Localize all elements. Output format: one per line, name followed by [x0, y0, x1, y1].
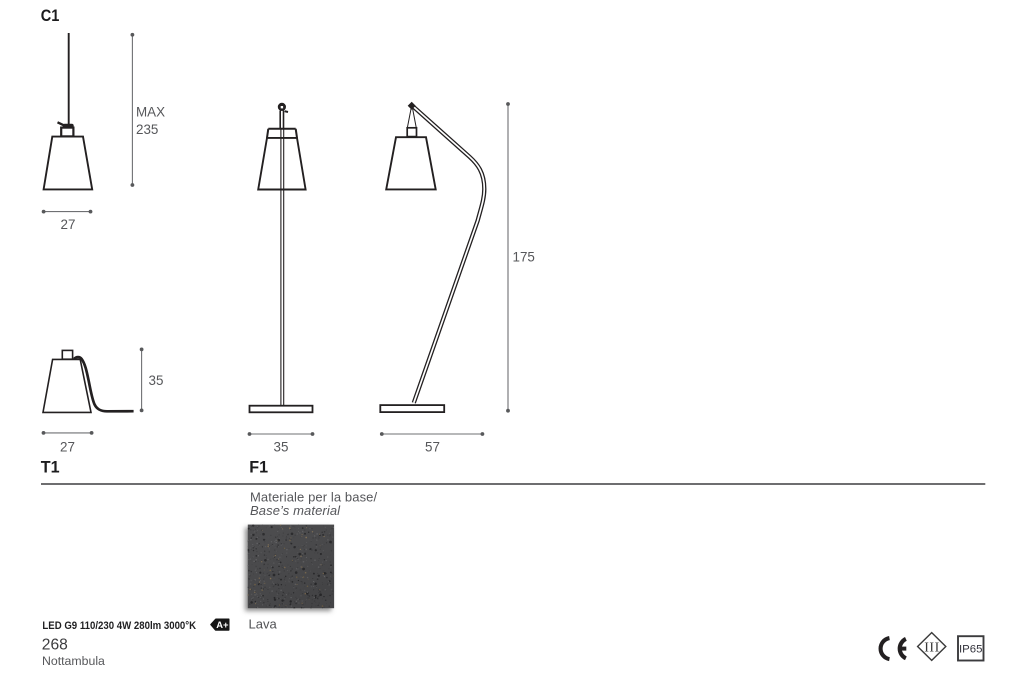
svg-text:35: 35 — [149, 373, 164, 388]
svg-text:Lava: Lava — [249, 617, 278, 632]
svg-text:MAX: MAX — [136, 105, 165, 120]
svg-text:175: 175 — [513, 249, 535, 264]
svg-text:57: 57 — [425, 440, 440, 455]
svg-text:III: III — [924, 640, 940, 655]
svg-text:A+: A+ — [216, 619, 229, 630]
svg-text:C1: C1 — [41, 6, 60, 25]
svg-text:F1: F1 — [249, 458, 268, 477]
svg-text:27: 27 — [60, 440, 75, 455]
svg-text:Nottambula: Nottambula — [42, 654, 105, 668]
svg-text:T1: T1 — [41, 458, 60, 477]
svg-text:IP65: IP65 — [959, 643, 982, 655]
svg-text:235: 235 — [136, 122, 158, 137]
svg-text:LED G9 110/230 4W 280lm 3000°K: LED G9 110/230 4W 280lm 3000°K — [42, 620, 196, 632]
svg-text:268: 268 — [42, 636, 68, 653]
svg-text:35: 35 — [274, 440, 289, 455]
svg-text:Base’s material: Base’s material — [250, 503, 341, 518]
svg-text:27: 27 — [61, 217, 76, 232]
